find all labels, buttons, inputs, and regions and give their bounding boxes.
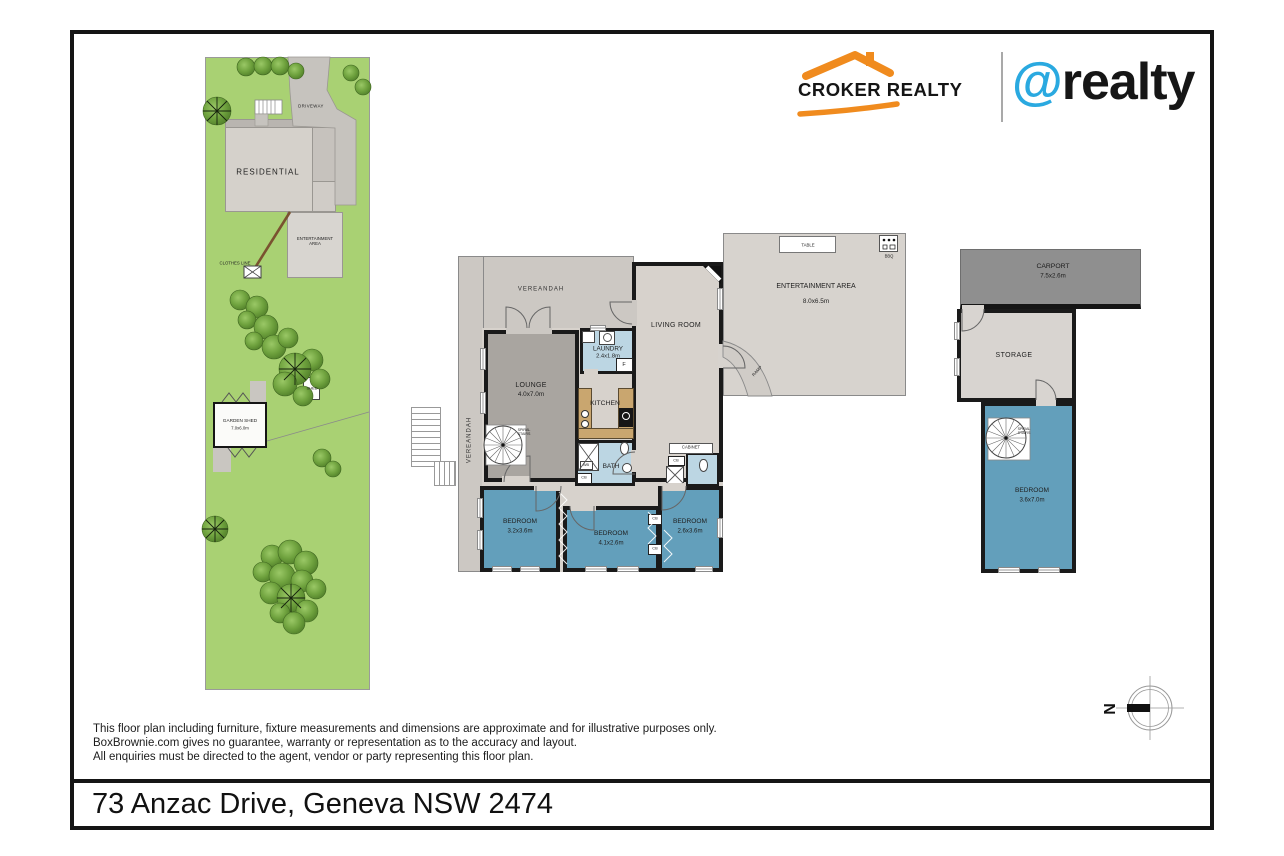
driveway-label: DRIVEWAY [298, 103, 324, 108]
door-gap-bath [631, 450, 639, 472]
bedroom2-label: BEDROOM [594, 530, 628, 538]
window [695, 566, 713, 572]
window [492, 566, 512, 572]
window [477, 498, 483, 518]
window [585, 566, 607, 572]
cabinet-label: CABINET [682, 446, 700, 451]
bath-label: BATH [603, 463, 620, 471]
floor-plan-page: CROKER REALTY @realty [0, 0, 1284, 856]
disclaimer-line-2: BoxBrownie.com gives no guarantee, warra… [93, 736, 793, 750]
window [717, 518, 723, 538]
window [1038, 567, 1060, 573]
door-gap-lounge-bottom [502, 476, 530, 484]
fridge-label: F [622, 362, 625, 368]
bedroom2-dims: 4.1x2.6m [598, 539, 623, 546]
atrealty-wordmark: realty [1062, 53, 1195, 111]
atrealty-logo: @realty [1012, 52, 1212, 118]
wc-toilet [699, 459, 708, 472]
living-room-label: LIVING ROOM [651, 322, 701, 330]
cooktop-burner-2 [581, 420, 589, 428]
site-entertainment-label: ENTERTAINMENT AREA [294, 236, 336, 246]
croker-realty-wordmark: CROKER REALTY [798, 79, 962, 101]
laundry-dims: 2.4x1.8m [596, 354, 620, 361]
bedroom3-label: BEDROOM [673, 518, 707, 526]
carport-dims: 7.5x2.6m [1040, 272, 1065, 279]
atrealty-at-symbol: @ [1012, 53, 1062, 111]
external-stairs-upper [411, 407, 441, 467]
table-label: TABLE [801, 242, 814, 247]
door-gap-bedroom1 [534, 483, 560, 491]
logo-divider [1001, 52, 1003, 122]
door-gap-laundry [584, 369, 598, 376]
cb-label-bath: CB [581, 476, 586, 481]
window [717, 288, 723, 310]
site-building-annex-lower [312, 181, 336, 212]
clothes-line-label: CLOTHES LINE [219, 260, 250, 265]
address-bar: 73 Anzac Drive, Geneva NSW 2474 [70, 779, 1214, 830]
spiral-stairs-label-lounge: SPIRAL STAIRS [514, 428, 534, 436]
wing-bedroom-dims: 3.6x7.0m [1019, 496, 1044, 503]
door-gap-bedroom2 [570, 503, 596, 511]
entertainment-deck [723, 233, 906, 396]
window [954, 322, 960, 340]
spiral-stairs-label-wing: SPIRAL STAIRS [1014, 427, 1034, 435]
door-gap-storage-bedroom [1036, 398, 1056, 406]
bedroom1-label: BEDROOM [503, 518, 537, 526]
bbq-label: BBQ [885, 255, 894, 260]
croker-realty-logo: CROKER REALTY [790, 42, 1000, 132]
verandah-top-label: VEREANDAH [518, 286, 564, 293]
window [520, 566, 540, 572]
cooktop-burner-1 [581, 410, 589, 418]
door-gap-verandah-double [506, 326, 552, 334]
disclaimer-line-3: All enquiries must be directed to the ag… [93, 750, 793, 764]
disclaimer-block: This floor plan including furniture, fix… [93, 722, 793, 764]
cb-label-wall2: CB [652, 547, 657, 552]
bath-basin-round [622, 463, 632, 473]
garden-shed-label: GARDEN SHED [223, 418, 257, 424]
window [954, 358, 960, 376]
external-stairs-lower [434, 461, 456, 486]
stove-oven-door [622, 412, 630, 420]
wing-bedroom-label: BEDROOM [1015, 487, 1049, 495]
lounge-label: LOUNGE [515, 382, 546, 390]
door-gap-living-right [718, 344, 727, 368]
garden-shed-dims: 7.0x6.0m [231, 425, 249, 430]
site-building-annex [312, 127, 336, 182]
door-gap-living-left [629, 300, 637, 326]
linen-cupboard [666, 466, 684, 484]
shed-label: SHED [306, 387, 317, 392]
disclaimer-line-1: This floor plan including furniture, fix… [93, 722, 793, 736]
bedroom3-dims: 2.6x3.6m [677, 527, 702, 534]
wb-label: WB [583, 463, 589, 467]
bedroom1-dims: 3.2x3.6m [507, 527, 532, 534]
residential-label: RESIDENTIAL [236, 167, 299, 176]
lounge-dims: 4.0x7.0m [518, 391, 544, 399]
laundry-tub [582, 331, 595, 343]
door-gap-storage [962, 305, 984, 313]
bath-toilet [620, 442, 629, 455]
window [998, 567, 1020, 573]
cb-label-wall1: CB [652, 517, 657, 522]
kitchen-label: KITCHEN [590, 400, 620, 408]
window [617, 566, 639, 572]
site-garden-shed-pad-bottom [213, 448, 231, 472]
washing-machine-drum [603, 333, 612, 342]
window [477, 530, 483, 550]
bbq-unit [879, 235, 898, 252]
cb-label-wc: CB [673, 459, 678, 464]
door-gap-bedroom3 [662, 483, 686, 491]
verandah-left-label: VEREANDAH [466, 417, 473, 463]
window [480, 348, 486, 370]
entertainment-label: ENTERTAINMENT AREA [776, 283, 856, 291]
kitchen-counter-bottom [578, 428, 634, 439]
property-address: 73 Anzac Drive, Geneva NSW 2474 [74, 788, 553, 821]
storage-label: STORAGE [996, 352, 1033, 360]
site-garden-shed-pad-top [250, 381, 266, 402]
window [480, 392, 486, 414]
lounge-room [484, 330, 579, 482]
laundry-label: LAUNDRY [593, 345, 623, 352]
carport-label: CARPORT [1036, 263, 1069, 271]
entertainment-dims: 8.0x6.5m [803, 298, 829, 306]
